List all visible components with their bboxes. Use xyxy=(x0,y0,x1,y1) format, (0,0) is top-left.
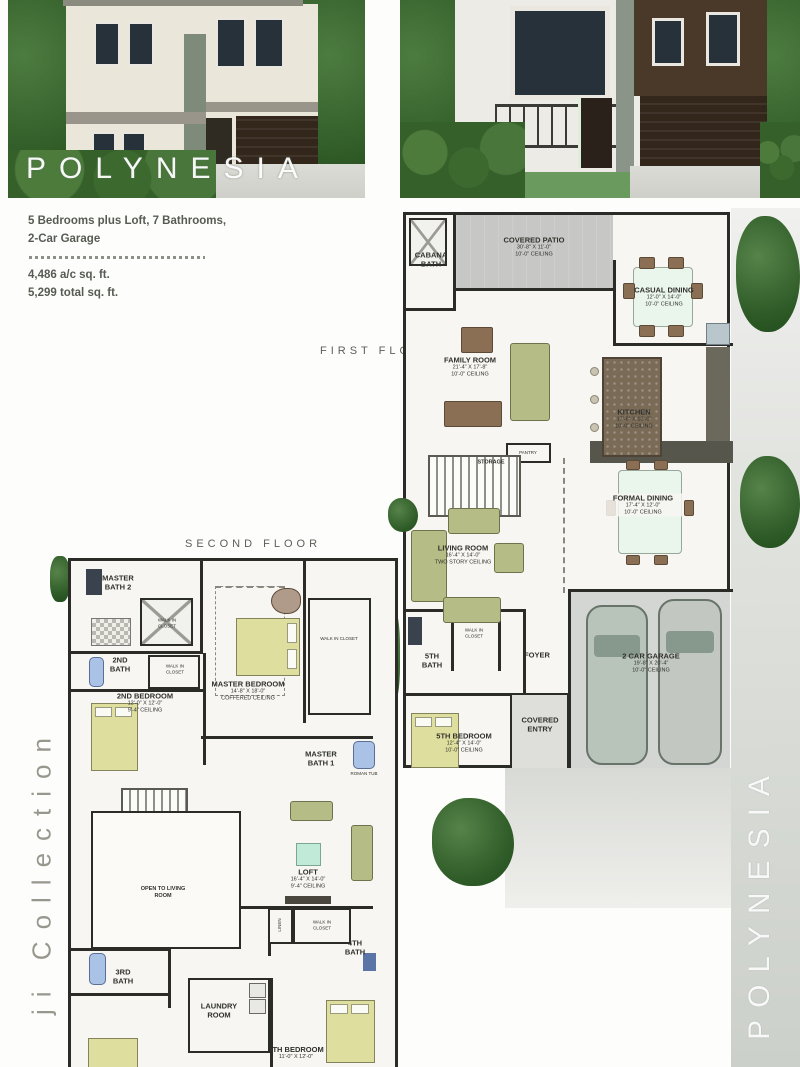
sofa xyxy=(448,508,500,534)
first-floor-plan: CABANA BATH COVERED PATIO 30'-8" X 11'-0… xyxy=(403,212,730,768)
wall xyxy=(71,948,171,951)
roof-edge xyxy=(63,0,303,6)
roof-band xyxy=(66,112,206,124)
specs-block: 5 Bedrooms plus Loft, 7 Bathrooms, 2-Car… xyxy=(28,212,288,248)
wall xyxy=(453,288,616,291)
bed xyxy=(88,1038,138,1067)
wall xyxy=(203,653,206,765)
hedge xyxy=(50,556,70,602)
bath-vanity xyxy=(408,617,422,645)
room-label: LINEN xyxy=(277,913,283,937)
chair xyxy=(668,257,684,269)
loveseat xyxy=(443,597,501,623)
chair xyxy=(639,325,655,337)
house-photo-right xyxy=(400,0,800,198)
foliage xyxy=(736,216,800,332)
wall xyxy=(406,308,456,311)
room-label: FAMILY ROOM 21'-4" X 17'-8" 10'-0" CEILI… xyxy=(429,355,511,378)
sofa xyxy=(510,343,550,421)
room-label: OPEN TO LIVING ROOM xyxy=(137,886,189,900)
specs-total-sqft: 5,299 total sq. ft. xyxy=(28,284,288,302)
room-label: CABANA BATH xyxy=(410,251,452,270)
foliage xyxy=(740,456,800,548)
room-label: WALK IN CLOSET xyxy=(319,636,359,642)
chair xyxy=(654,555,668,565)
wall xyxy=(200,561,203,654)
dryer xyxy=(249,999,266,1014)
room-label: 2 CAR GARAGE 19'-8" X 20'-4" 10'-0" CEIL… xyxy=(605,651,697,674)
second-floor-heading: SECOND FLOOR xyxy=(185,538,321,550)
room-label: FORMAL DINING 17'-4" X 12'-0" 10'-0" CEI… xyxy=(602,493,684,516)
room-label: COVERED ENTRY xyxy=(517,716,563,735)
pillow xyxy=(415,717,432,727)
front-hedge xyxy=(760,122,800,198)
room-label: LAUNDRY ROOM xyxy=(193,1002,245,1021)
wall xyxy=(71,651,203,654)
window xyxy=(94,22,120,66)
chair xyxy=(654,460,668,470)
car-windshield xyxy=(666,631,714,653)
room-label: PANTRY xyxy=(503,450,553,456)
room-label: 5TH BATH xyxy=(417,652,447,671)
stool xyxy=(590,367,599,376)
room-label: 2ND BATH xyxy=(104,656,136,675)
wall xyxy=(303,561,306,723)
room-label: FOYER xyxy=(512,650,562,659)
kitchen-counter xyxy=(706,347,730,441)
chair xyxy=(639,257,655,269)
chair xyxy=(271,588,301,614)
car xyxy=(658,599,722,765)
chair xyxy=(626,555,640,565)
palm-tree xyxy=(432,798,514,886)
chair xyxy=(684,500,694,516)
media-console xyxy=(285,896,331,904)
stone-column xyxy=(616,0,634,172)
window xyxy=(652,18,684,66)
chair xyxy=(626,460,640,470)
front-hedge xyxy=(400,122,525,198)
walkin-closet-area xyxy=(308,598,371,715)
two-story-opening xyxy=(563,458,565,593)
pillow xyxy=(330,1004,348,1014)
room-label: MASTER BATH 1 xyxy=(295,750,347,769)
garage-door xyxy=(640,96,767,168)
street-model-name: POLYNESIA xyxy=(743,732,777,1067)
bathtub xyxy=(89,657,104,687)
room-label: COVERED PATIO 30'-8" X 11'-0" 10'-0" CEI… xyxy=(488,235,580,258)
armchair xyxy=(461,327,493,353)
pillow xyxy=(351,1004,369,1014)
room-label: STORAGE xyxy=(461,460,521,467)
entry-door xyxy=(578,98,612,168)
room-label: WALK IN CLOSET xyxy=(456,627,492,638)
room-label: MASTER BEDROOM 14'-8" X 18'-0" COFFERED … xyxy=(202,679,294,702)
roman-tub xyxy=(353,741,375,769)
tiled-floor xyxy=(91,618,131,646)
chair xyxy=(668,325,684,337)
window xyxy=(706,12,740,66)
wall xyxy=(71,993,171,996)
stone-column xyxy=(184,34,206,164)
sofa xyxy=(444,401,502,427)
room-label: 4TH BATH xyxy=(339,939,371,958)
sofa xyxy=(351,825,373,881)
room-label: 4TH BEDROOM 11'-0" X 12'-0" xyxy=(255,1045,337,1061)
window xyxy=(216,18,246,68)
specs-garage: 2-Car Garage xyxy=(28,230,288,248)
room-label: LIVING ROOM 16'-4" X 14'-0" TWO STORY CE… xyxy=(423,543,503,566)
window xyxy=(254,18,284,68)
room-label: KITCHEN 17'-8" X 13'-0" 10'-0" CEILING xyxy=(598,407,670,430)
room-label: WALK IN CLOSET xyxy=(150,617,184,628)
room-label: 5TH BEDROOM 12'-4" X 14'-0" 10'-0" CEILI… xyxy=(423,731,505,754)
tree xyxy=(388,498,418,532)
stool xyxy=(590,395,599,404)
specs-sqft-block: 4,486 a/c sq. ft. 5,299 total sq. ft. xyxy=(28,266,288,302)
specs-bedrooms: 5 Bedrooms plus Loft, 7 Bathrooms, xyxy=(28,212,288,230)
room-label: MASTER BATH 2 xyxy=(94,574,142,593)
open-to-below xyxy=(91,811,241,949)
divider xyxy=(29,256,205,259)
room-label: 2ND BEDROOM 12'-0" X 12'-0" 9'-4" CEILIN… xyxy=(107,691,183,714)
wall xyxy=(406,693,526,696)
roof-band xyxy=(206,102,318,112)
table xyxy=(296,843,321,866)
brochure-page: POLYNESIA 5 Bedrooms plus Loft, 7 Bathro… xyxy=(0,0,800,1067)
second-floor-plan: MASTER BATH 2 WALK IN CLOSET 2ND BATH WA… xyxy=(68,558,398,1067)
room-label: WALK IN CLOSET xyxy=(158,663,192,674)
room-label: LOFT 16'-4" X 14'-0" 9'-4" CEILING xyxy=(273,867,343,890)
room-label: ROMAN TUB xyxy=(349,771,379,777)
wall xyxy=(168,948,171,1008)
driveway-apron xyxy=(505,768,731,908)
refrigerator xyxy=(706,323,730,345)
collection-name: ji Collection xyxy=(27,676,58,1066)
room-label: CASUAL DINING 12'-0" X 14'-0" 10'-0" CEI… xyxy=(623,285,705,308)
wall xyxy=(201,736,373,739)
pillow xyxy=(435,717,452,727)
model-title: POLYNESIA xyxy=(26,152,311,186)
window xyxy=(128,22,154,66)
specs-ac-sqft: 4,486 a/c sq. ft. xyxy=(28,266,288,284)
house-photo-left: POLYNESIA xyxy=(8,0,365,198)
room-label: 3RD BATH xyxy=(107,968,139,987)
wall xyxy=(453,215,456,310)
room-label: WALK IN CLOSET xyxy=(304,919,340,930)
pillow xyxy=(287,623,297,643)
pillow xyxy=(287,649,297,669)
bathtub xyxy=(89,953,106,985)
wall xyxy=(613,260,616,345)
loveseat xyxy=(290,801,333,821)
car xyxy=(586,605,648,765)
window-wall xyxy=(510,6,610,100)
washer xyxy=(249,983,266,998)
